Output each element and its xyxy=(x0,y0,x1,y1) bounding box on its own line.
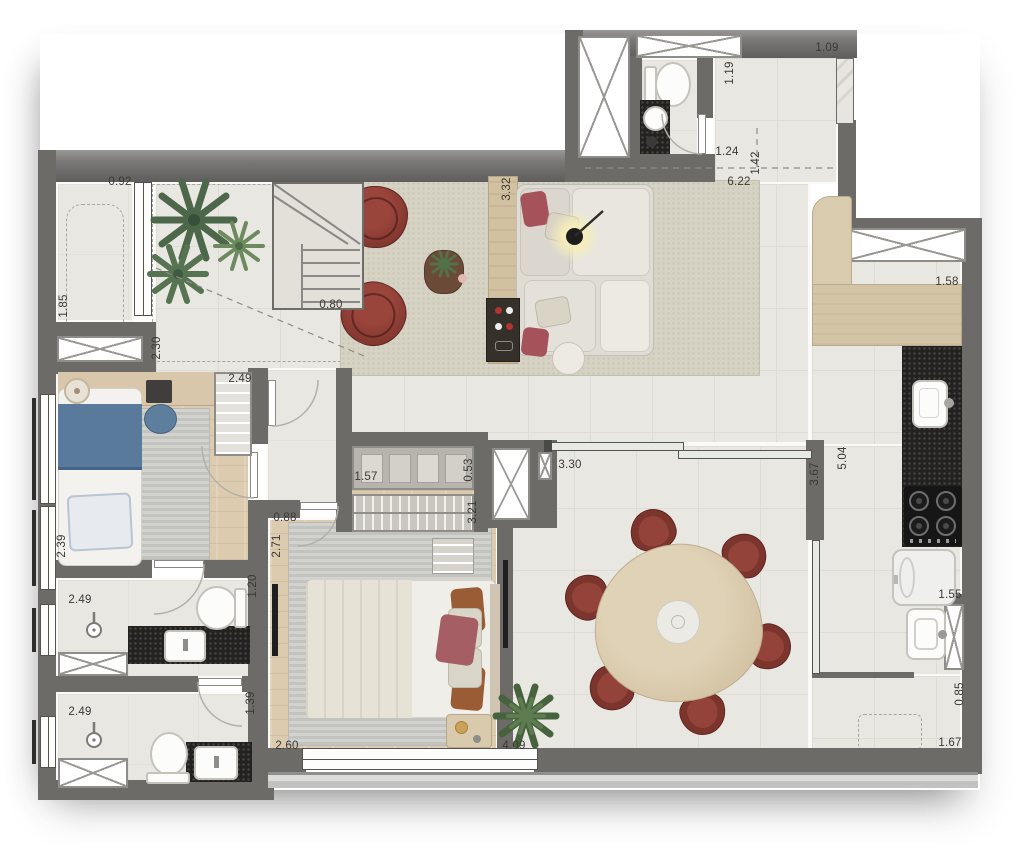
toilet-icon xyxy=(196,586,238,630)
wall-lavabo-bottom xyxy=(565,154,715,182)
wall-bath2-top-a xyxy=(56,676,198,692)
door-leaf-bath2 xyxy=(198,678,242,686)
door-leaf-lavabo xyxy=(698,114,706,154)
dim-service-opening: 0.85 xyxy=(954,682,966,705)
lavabo-decor xyxy=(646,136,657,147)
laundry-sink-icon xyxy=(906,608,946,660)
dim-closet-shelf-d: 0.53 xyxy=(463,458,475,481)
bath2-toilet-tank xyxy=(146,772,190,784)
tv-icon xyxy=(503,560,508,648)
window-sill-4 xyxy=(32,720,36,764)
dining-table-centerpiece xyxy=(656,600,700,644)
dim-terrace-width: 1.85 xyxy=(58,294,70,317)
palm-plant-icon xyxy=(142,172,272,307)
door-leaf-bath1 xyxy=(154,560,204,568)
dim-lavabo-depth: 1.19 xyxy=(724,61,736,84)
dim-terrace-span: 4.09 xyxy=(502,740,525,752)
dim-dining-wall: 3.67 xyxy=(809,462,821,485)
dim-living-span: 6.22 xyxy=(727,176,750,188)
kitchen-counter-wood xyxy=(812,284,962,346)
dim-kitchen-counter: 1.58 xyxy=(935,276,958,288)
dim-entry-depth: 1.42 xyxy=(750,151,762,174)
wall-terrace-left xyxy=(38,150,56,340)
side-table-icon xyxy=(552,342,585,375)
laptop-icon xyxy=(146,380,172,403)
dim-living-console: 3.32 xyxy=(501,177,513,200)
bath1-sink-icon xyxy=(164,630,206,662)
duct-shaft-terrace xyxy=(57,336,143,362)
kitchen-faucet xyxy=(944,398,954,408)
wall-decor-round xyxy=(64,378,90,404)
dim-stair-width: 0.80 xyxy=(319,299,342,311)
single-bed-blanket xyxy=(58,404,142,470)
wall-service-partition xyxy=(812,672,914,678)
duct-shaft-center-small xyxy=(538,452,552,480)
dim-master-door: 0.88 xyxy=(273,512,296,524)
bath2-sink-icon xyxy=(194,746,238,780)
dim-service-width: 1.67 xyxy=(938,737,961,749)
bedroom2-window-b xyxy=(40,506,56,590)
staircase-icon xyxy=(274,184,362,308)
wall-bedroom2-right-b xyxy=(248,500,268,780)
window-sill-3 xyxy=(32,608,36,652)
double-bed-duvet xyxy=(306,580,412,718)
closet-shelf-icon xyxy=(352,446,474,490)
door-leaf-bedroom2 xyxy=(250,452,258,498)
wall-bath2-top-b xyxy=(242,676,250,692)
wall-bath1-top-b xyxy=(204,560,250,578)
cooktop-icon xyxy=(904,486,962,546)
dim-bedroom2-width: 2.49 xyxy=(228,373,251,385)
dim-bedroom2-depth: 2.39 xyxy=(56,534,68,557)
wall-closet-top xyxy=(336,432,488,446)
bed-pillow-rose xyxy=(435,614,479,667)
floor-plan: 0.92 1.85 2.30 0.80 2.49 3.32 1.19 1.24 … xyxy=(0,0,1024,857)
service-cabinet-dashed xyxy=(858,714,922,750)
sink-icon xyxy=(643,106,668,131)
kitchen-glass-partition xyxy=(812,540,820,674)
duct-shaft-bath1 xyxy=(58,652,128,676)
dim-stair-zone: 2.30 xyxy=(151,336,163,359)
dim-bath2-width: 2.49 xyxy=(68,706,91,718)
dim-laundry-niche: 1.55 xyxy=(938,589,961,601)
bath2-window xyxy=(40,716,56,768)
staircase xyxy=(272,182,364,310)
sliding-glass-door-panel-1 xyxy=(548,442,684,451)
dim-lavabo-width: 1.24 xyxy=(715,146,738,158)
entry-threshold-icon xyxy=(836,58,854,124)
wall-closet-left xyxy=(336,368,352,532)
wall-lavabo-right xyxy=(697,56,713,118)
sliding-glass-door-panel-2 xyxy=(678,450,812,459)
duct-shaft-bath2 xyxy=(58,758,128,788)
dim-closet-rail: 3.21 xyxy=(467,500,479,523)
duct-shaft-center-large xyxy=(492,448,530,520)
duct-shaft-lavabo-top xyxy=(636,34,742,58)
window-sill-2 xyxy=(32,510,36,586)
toilet-icon xyxy=(150,732,188,776)
dim-kitchen-length: 5.04 xyxy=(837,446,849,469)
terrace-railing-glass xyxy=(268,772,978,788)
dim-bath1-width: 2.49 xyxy=(68,594,91,606)
dresser-icon xyxy=(432,538,474,574)
dim-entry-door: 1.09 xyxy=(815,42,838,54)
duct-shaft-kitchen-top xyxy=(846,228,966,262)
dim-sliding-door: 3.30 xyxy=(558,459,581,471)
wall-bottom-right xyxy=(534,748,982,772)
sofa-pillow xyxy=(534,295,572,328)
bath1-toilet-tank xyxy=(234,588,247,628)
dim-bath2-depth: 1.39 xyxy=(245,691,257,714)
kitchen-sink-icon xyxy=(912,380,948,428)
duct-shaft-laundry xyxy=(944,604,964,670)
sofa-pillow-red xyxy=(520,327,549,358)
media-console xyxy=(486,298,520,362)
fern-plant-icon xyxy=(486,676,566,756)
duct-shaft-lavabo-left xyxy=(578,36,630,158)
sofa-cushion xyxy=(600,280,650,352)
hallway-floor xyxy=(266,368,338,504)
dim-bath1-entry: 1.20 xyxy=(247,574,259,597)
door-leaf-master xyxy=(300,502,338,510)
potted-plant-icon xyxy=(426,246,462,282)
floor-lamp-icon xyxy=(566,228,583,245)
dim-master-entry: 2.71 xyxy=(271,534,283,557)
dim-closet-shelf-w: 1.57 xyxy=(354,471,377,483)
window-sill-1 xyxy=(32,398,36,500)
dim-terrace-opening: 0.92 xyxy=(108,176,131,188)
bedroom2-window-a xyxy=(40,394,56,504)
door-leaf-hallway xyxy=(268,380,276,426)
dim-master-window: 2.60 xyxy=(275,740,298,752)
desk-chair-icon xyxy=(144,404,177,434)
closet-hangers-icon xyxy=(352,494,474,532)
single-bed-pillow xyxy=(67,492,134,551)
tv-icon xyxy=(272,584,278,656)
bath1-window xyxy=(40,604,56,656)
